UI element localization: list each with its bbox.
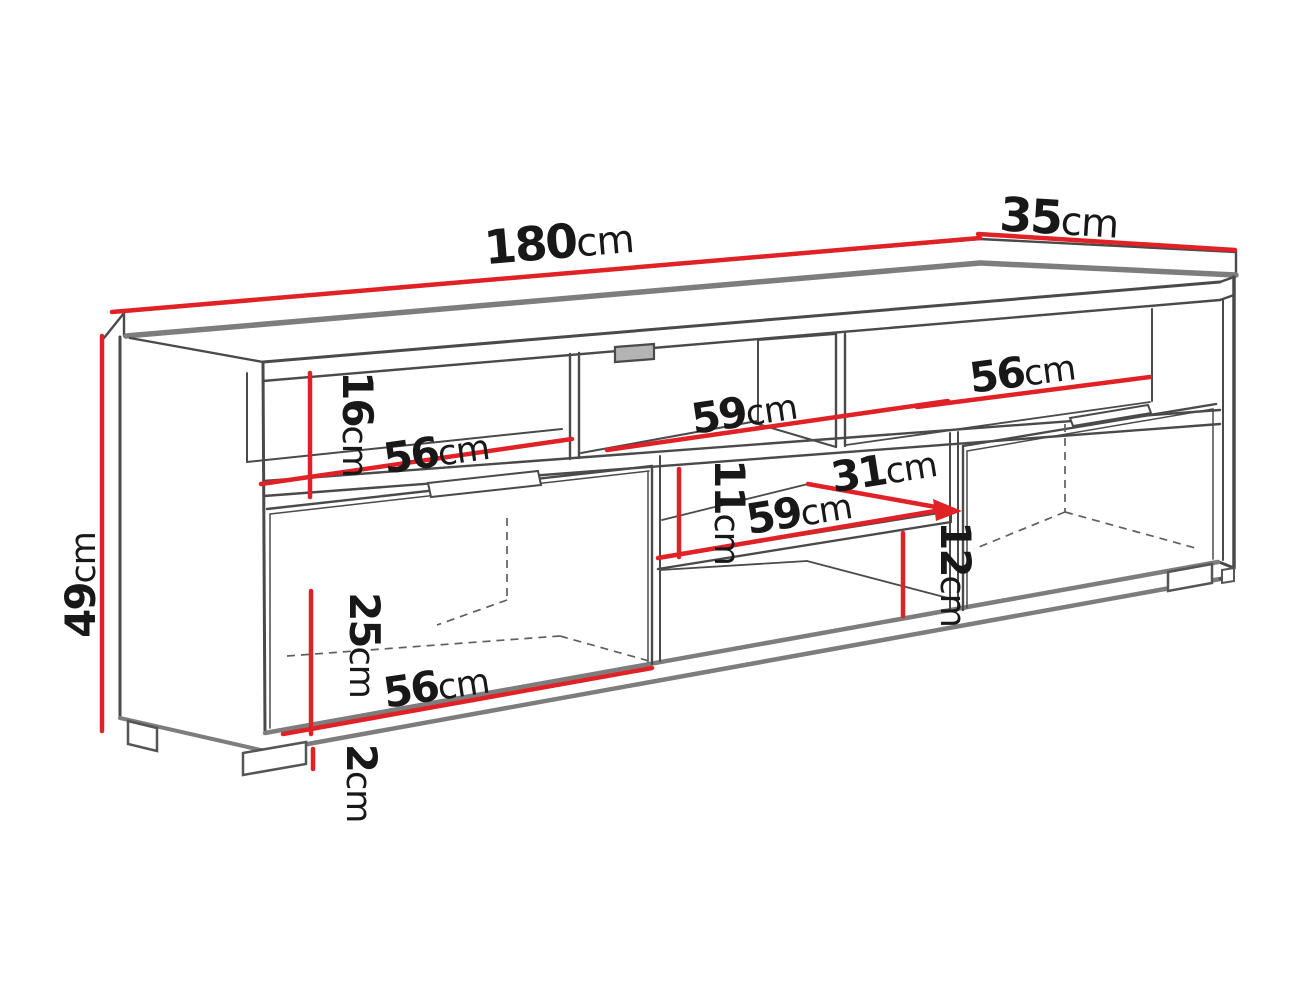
hidden-corner-diagonal-right-b	[1065, 512, 1199, 549]
hidden-corner-diagonal-right-a	[974, 512, 1065, 549]
foot-back-right	[1222, 568, 1234, 583]
left-side-front-edge	[263, 362, 265, 733]
back-left-corner-edge	[104, 313, 124, 338]
right-side-bottom-edge	[1219, 562, 1234, 568]
dim-label-16cm: 16cm	[333, 371, 382, 477]
top-surface-left-edge	[130, 338, 263, 362]
dim-label-59cm-shelf: 59cm	[743, 479, 855, 544]
hidden-corner-diagonal-left	[437, 600, 507, 625]
dim-label-49cm: 49cm	[56, 532, 105, 638]
hidden-depth-edge-left	[560, 636, 649, 661]
dim-label-59cm-top-middle: 59cm	[688, 380, 800, 444]
top-panel-right-top-edge	[1220, 277, 1234, 282]
top-panel-front-top-edge	[263, 282, 1220, 362]
hidden-floor-edge-left	[287, 636, 560, 656]
dim-label-56cm-top-right: 56cm	[966, 340, 1077, 402]
dim-label-11cm: 11cm	[705, 459, 754, 565]
back-strip-right-base-edge	[981, 263, 1236, 275]
dim-label-12cm: 12cm	[931, 521, 980, 627]
diagram-page: 180cm 35cm 49cm 16cm 56cm 59cm 56cm 31cm…	[0, 0, 1311, 983]
tv-stand-dimension-drawing: 180cm 35cm 49cm 16cm 56cm 59cm 56cm 31cm…	[0, 0, 1311, 983]
cable-slot	[615, 344, 654, 362]
dimension-labels: 180cm 35cm 49cm 16cm 56cm 59cm 56cm 31cm…	[56, 187, 1120, 822]
dim-label-56cm-bottom: 56cm	[380, 654, 492, 718]
dim-label-56cm-top-left: 56cm	[380, 420, 492, 483]
cabinet-line-art	[104, 239, 1236, 775]
dim-label-180cm: 180cm	[482, 209, 636, 276]
middle-floor-corner-edge	[807, 561, 948, 598]
top-panel-right-bottom-edge	[1220, 295, 1234, 300]
left-door-handle	[428, 471, 541, 497]
dim-label-35cm: 35cm	[998, 187, 1120, 249]
dim-label-2cm: 2cm	[337, 744, 386, 823]
